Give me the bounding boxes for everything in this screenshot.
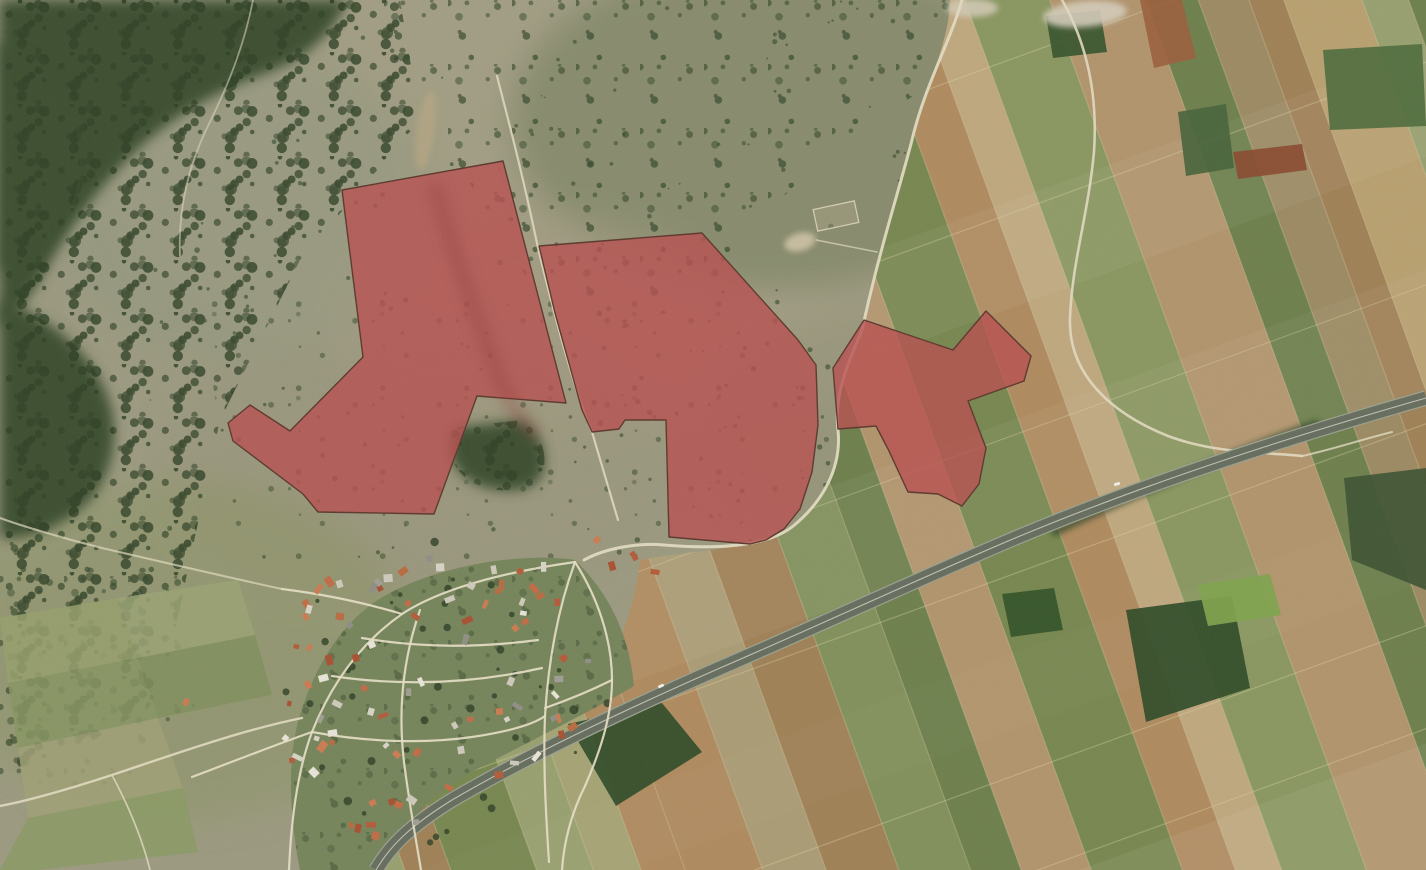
satellite-map bbox=[0, 0, 1426, 870]
map-viewport[interactable] bbox=[0, 0, 1426, 870]
